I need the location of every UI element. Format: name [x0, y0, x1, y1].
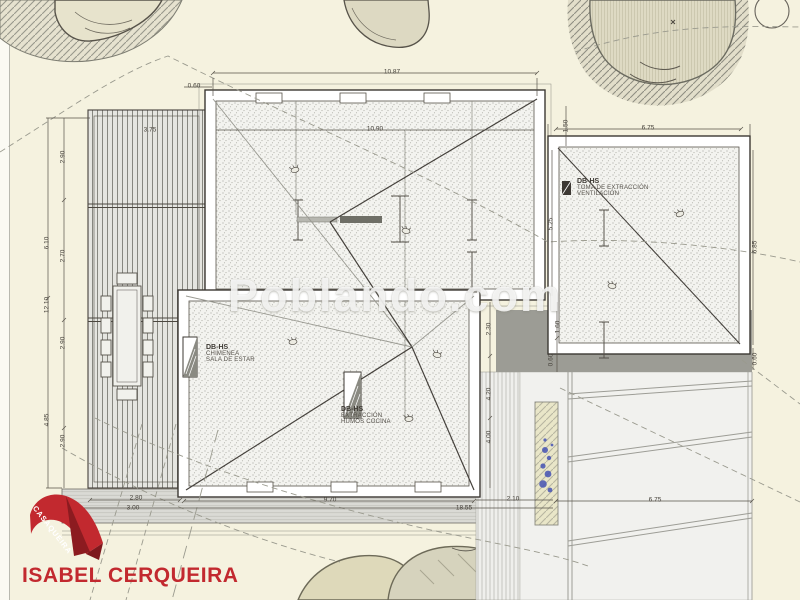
watermark: Poblando.com: [228, 270, 562, 322]
note-code: DB-HS: [577, 178, 649, 185]
dimension-label: 2.90: [60, 337, 67, 350]
beam-bar: [340, 216, 382, 223]
page-edge: [0, 38, 10, 600]
note-line2: VENTILACIÓN: [577, 191, 649, 197]
dimension-label: 3.00: [127, 505, 140, 512]
note-line2: SALA DE ESTAR: [206, 357, 255, 363]
dimension-label: 4.00: [486, 431, 493, 444]
dimension-label: 6.75: [649, 497, 662, 504]
dimension-label: 10.87: [384, 69, 400, 76]
roof-annex: [548, 136, 750, 354]
note-code: DB-HS: [341, 406, 391, 413]
dimension-label: 4.85: [44, 414, 51, 427]
site-plan-page: Poblando.com DB-HS TOMA DE EXTRACCIÓN VE…: [0, 0, 800, 600]
dimension-label: 3.75: [144, 127, 157, 134]
dimension-label: 4.20: [486, 388, 493, 401]
note-line2: HUMOS COCINA: [341, 419, 391, 425]
dimension-label: 18.55: [456, 505, 472, 512]
vegetation-top-center: [344, 0, 429, 47]
chimney-icon: [183, 337, 197, 377]
dimension-label: 0.60: [548, 354, 555, 367]
dimension-label: 2.10: [507, 496, 520, 503]
dimension-label: 1.60: [555, 321, 562, 334]
dimension-label: 1.50: [563, 120, 570, 133]
dimension-label: 6.10: [44, 237, 51, 250]
dimension-label: 2.80: [130, 495, 143, 502]
dimension-label: 6.75: [642, 125, 655, 132]
dimension-label: 9.70: [324, 497, 337, 504]
vegetation-top-left: [0, 0, 182, 62]
walkway: [476, 372, 520, 600]
brand-name: ISABEL CERQUEIRA: [22, 564, 238, 588]
dimension-label: 2.30: [486, 323, 493, 336]
roof-main-lower-surface: [189, 301, 469, 486]
dimension-label: 2.90: [60, 435, 67, 448]
dimension-label: 2.70: [60, 250, 67, 263]
dimension-label: 12.10: [44, 297, 51, 313]
note-code: DB-HS: [206, 344, 255, 351]
note-kitchen-extract: DB-HS EXTRACCIÓN HUMOS COCINA: [341, 406, 391, 425]
vent-intake-icon: [562, 181, 571, 195]
dimension-label: 5.25: [548, 218, 555, 231]
dimension-label: 0.60: [752, 353, 759, 366]
dimension-label: 10.90: [367, 126, 383, 133]
vegetation-top-right: [568, 0, 789, 106]
dimension-label: 0.60: [188, 83, 201, 90]
dimension-label: 2.90: [60, 151, 67, 164]
note-ventilation-intake: DB-HS TOMA DE EXTRACCIÓN VENTILACIÓN: [577, 178, 649, 197]
dimension-label: 6.85: [752, 241, 759, 254]
planter: [535, 402, 558, 525]
note-chimney-living: DB-HS CHIMENEA SALA DE ESTAR: [206, 344, 255, 363]
